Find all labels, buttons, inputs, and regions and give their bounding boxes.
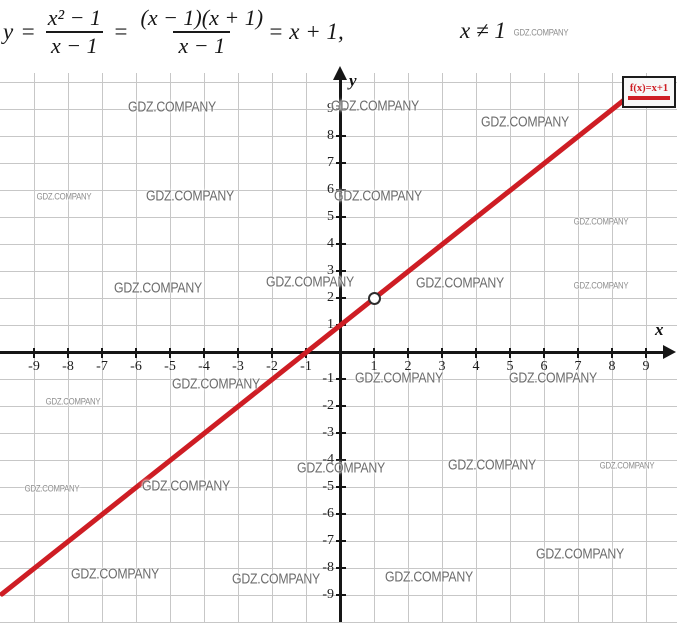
legend-line-sample (628, 96, 670, 100)
x-tick (441, 348, 443, 358)
x-tick (33, 348, 35, 358)
y-tick (336, 513, 346, 515)
y-tick-label: 9 (304, 101, 334, 117)
x-tick-label: -5 (164, 359, 176, 375)
y-axis-arrow-icon (333, 66, 347, 80)
x-tick (135, 348, 137, 358)
watermark: GDZ.COMPANY (146, 188, 234, 205)
y-tick-label: -5 (304, 479, 334, 495)
fraction-denominator: x − 1 (46, 31, 103, 58)
x-tick (237, 348, 239, 358)
watermark: GDZ.COMPANY (71, 566, 159, 583)
x-tick (203, 348, 205, 358)
x-tick (169, 348, 171, 358)
watermark: GDZ.COMPANY (142, 478, 230, 495)
y-tick-label: -1 (304, 371, 334, 387)
y-tick-label: -6 (304, 506, 334, 522)
watermark: GDZ.COMPANY (481, 114, 569, 131)
x-tick-label: -3 (232, 359, 244, 375)
x-axis-arrow-icon (663, 345, 676, 359)
watermark: GDZ.COMPANY (600, 461, 655, 472)
y-tick (336, 162, 346, 164)
y-tick-label: -3 (304, 425, 334, 441)
y-tick (336, 432, 346, 434)
formula-fraction-2: (x − 1)(x + 1) x − 1 (136, 6, 269, 58)
formula-tail: = x + 1, (268, 19, 344, 45)
y-tick (336, 594, 346, 596)
x-tick (67, 348, 69, 358)
y-tick-label: -7 (304, 533, 334, 549)
y-tick (336, 567, 346, 569)
x-tick-label: 8 (609, 359, 616, 375)
watermark: GDZ.COMPANY (25, 484, 80, 495)
y-tick-label: 7 (304, 155, 334, 171)
watermark: GDZ.COMPANY (574, 217, 629, 228)
formula-domain-condition: x ≠ 1 (460, 18, 506, 44)
formula-fraction-1: x² − 1 x − 1 (43, 6, 106, 58)
watermark: GDZ.COMPANY (416, 275, 504, 292)
x-tick (577, 348, 579, 358)
watermark: GDZ.COMPANY (448, 457, 536, 474)
x-tick (475, 348, 477, 358)
watermark: GDZ.COMPANY (536, 546, 624, 563)
fraction-numerator: x² − 1 (43, 6, 106, 31)
x-tick (271, 348, 273, 358)
watermark: GDZ.COMPANY (514, 28, 569, 39)
x-tick (407, 348, 409, 358)
y-tick (336, 486, 346, 488)
y-tick (336, 405, 346, 407)
y-tick (336, 540, 346, 542)
y-tick-label: 5 (304, 209, 334, 225)
x-tick (509, 348, 511, 358)
watermark: GDZ.COMPANY (37, 192, 92, 203)
y-tick (336, 378, 346, 380)
x-tick (611, 348, 613, 358)
watermark: GDZ.COMPANY (574, 281, 629, 292)
y-tick (336, 135, 346, 137)
x-tick-label: -8 (62, 359, 74, 375)
watermark: GDZ.COMPANY (172, 376, 260, 393)
x-tick (645, 348, 647, 358)
formula-lhs: y (3, 19, 13, 45)
watermark: GDZ.COMPANY (128, 99, 216, 116)
x-tick (373, 348, 375, 358)
equals-sign: = (20, 19, 36, 45)
watermark: GDZ.COMPANY (46, 397, 101, 408)
y-tick-label: 6 (304, 182, 334, 198)
watermark: GDZ.COMPANY (114, 280, 202, 297)
y-tick-label: 2 (304, 290, 334, 306)
y-tick (336, 297, 346, 299)
watermark: GDZ.COMPANY (331, 98, 419, 115)
excluded-point-marker (368, 292, 381, 305)
x-tick-label: 9 (643, 359, 650, 375)
watermark: GDZ.COMPANY (355, 370, 443, 387)
y-tick-label: 8 (304, 128, 334, 144)
formula: y = x² − 1 x − 1 = (x − 1)(x + 1) x − 1 … (3, 0, 344, 64)
x-axis (0, 351, 666, 354)
y-tick-label: 4 (304, 236, 334, 252)
watermark: GDZ.COMPANY (232, 571, 320, 588)
watermark: GDZ.COMPANY (509, 370, 597, 387)
x-tick-label: -9 (28, 359, 40, 375)
x-tick-label: -7 (96, 359, 108, 375)
plot-area: x y f(x)=x+1 -9-8-7-6-5-4-3-2-1123456789… (0, 65, 677, 627)
legend: f(x)=x+1 (622, 76, 676, 108)
x-tick-label: -4 (198, 359, 210, 375)
watermark: GDZ.COMPANY (385, 569, 473, 586)
y-tick-label: -9 (304, 587, 334, 603)
y-tick (336, 270, 346, 272)
y-tick (336, 243, 346, 245)
screenshot-root: y = x² − 1 x − 1 = (x − 1)(x + 1) x − 1 … (0, 0, 677, 627)
y-axis-label: y (349, 71, 357, 91)
x-tick (543, 348, 545, 358)
x-tick-label: -6 (130, 359, 142, 375)
fraction-denominator: x − 1 (173, 31, 230, 58)
fraction-numerator: (x − 1)(x + 1) (136, 6, 269, 31)
watermark: GDZ.COMPANY (266, 274, 354, 291)
y-tick (336, 216, 346, 218)
watermark: GDZ.COMPANY (297, 460, 385, 477)
watermark: GDZ.COMPANY (334, 188, 422, 205)
x-tick-label: 4 (473, 359, 480, 375)
x-tick (101, 348, 103, 358)
legend-label: f(x)=x+1 (630, 84, 668, 95)
x-axis-label: x (655, 320, 664, 340)
y-tick-label: -2 (304, 398, 334, 414)
equals-sign: = (113, 19, 129, 45)
